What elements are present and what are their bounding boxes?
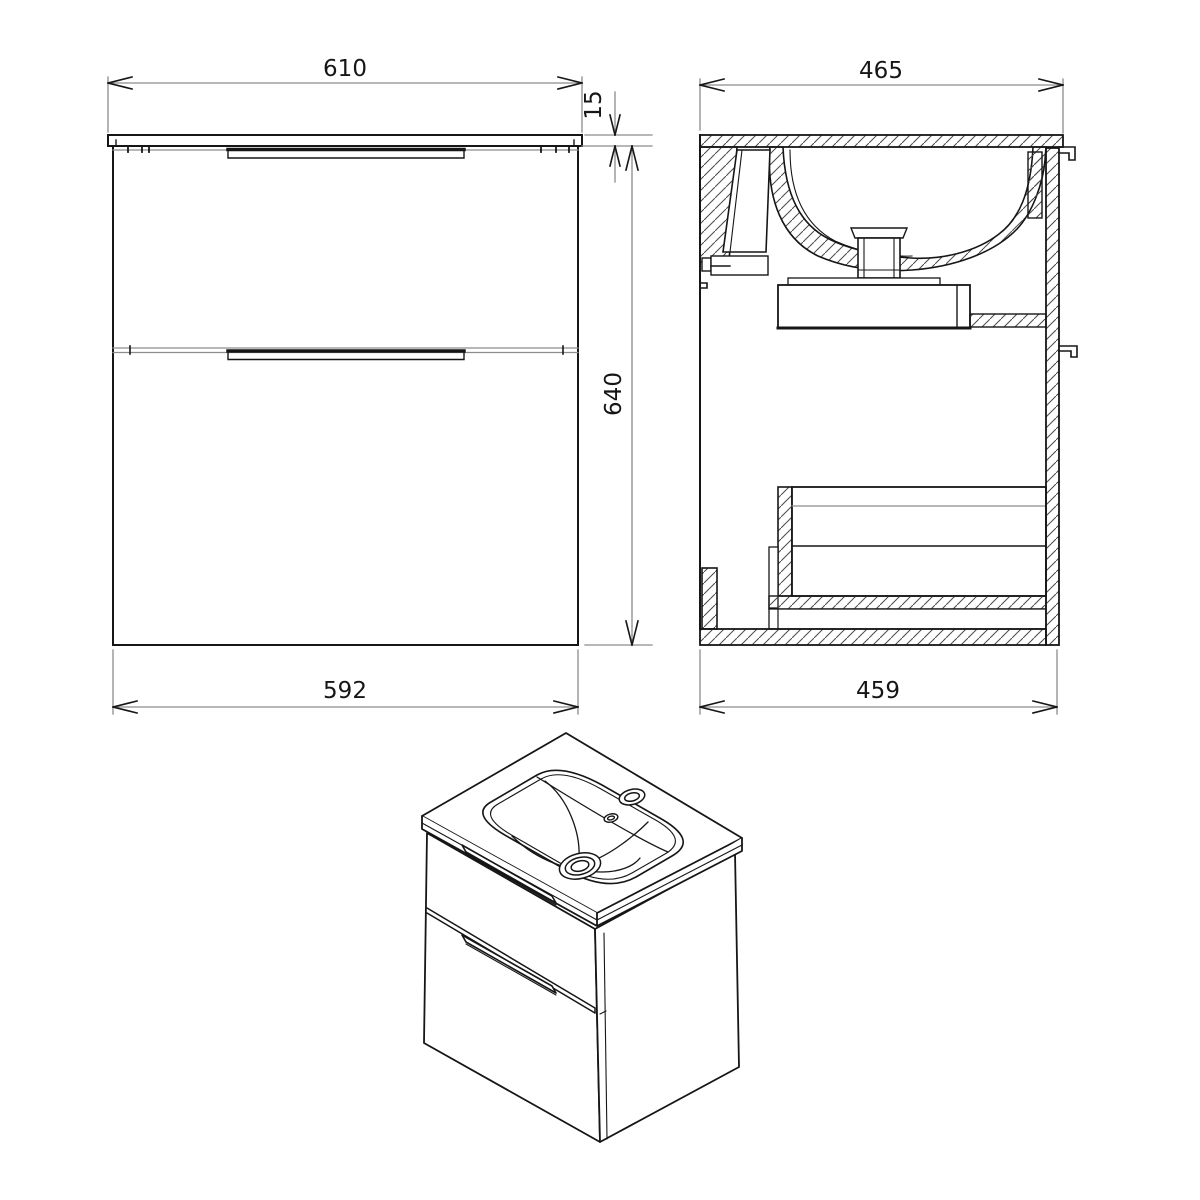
dim-label-459: 459 <box>856 678 900 704</box>
dim-label-465: 465 <box>859 58 903 84</box>
side-basin-slab <box>700 135 1063 147</box>
vanity-technical-drawing: 610 15 640 592 <box>0 0 1200 1200</box>
dim-label-610: 610 <box>323 56 367 82</box>
front-cabinet-body <box>113 146 578 645</box>
side-basin-bowl-wall <box>769 147 1046 271</box>
side-bottom-board <box>700 629 1046 645</box>
dim-front-height: 640 <box>585 146 652 645</box>
side-front-notch <box>700 283 707 288</box>
dim-label-592: 592 <box>323 678 367 704</box>
dim-label-640: 640 <box>601 372 627 416</box>
dim-side-top-depth: 465 <box>700 58 1063 133</box>
dim-side-body-depth: 459 <box>700 650 1057 714</box>
dim-front-body-width: 592 <box>113 650 578 714</box>
side-drawer-slide-bracket <box>702 256 768 275</box>
side-wall-rail <box>1028 152 1042 218</box>
side-back-panel <box>1046 148 1059 645</box>
front-view: 610 15 640 592 <box>108 56 652 714</box>
dim-front-top-width: 610 <box>108 56 582 132</box>
isometric-view <box>422 733 742 1142</box>
side-lower-drawer <box>769 487 1046 629</box>
drawing-sheet: 610 15 640 592 <box>0 0 1200 1200</box>
side-wall-hook-top <box>1059 147 1075 160</box>
side-wall-hook-mid <box>1059 346 1077 357</box>
side-upper-drawer-box <box>778 278 1046 328</box>
front-counter-top <box>108 135 582 146</box>
side-bottom-front-rail <box>702 568 717 629</box>
dim-label-15: 15 <box>581 90 607 119</box>
side-section-view: 465 459 <box>700 58 1077 714</box>
side-drain <box>851 228 907 278</box>
dim-front-top-thickness: 15 <box>581 90 652 182</box>
